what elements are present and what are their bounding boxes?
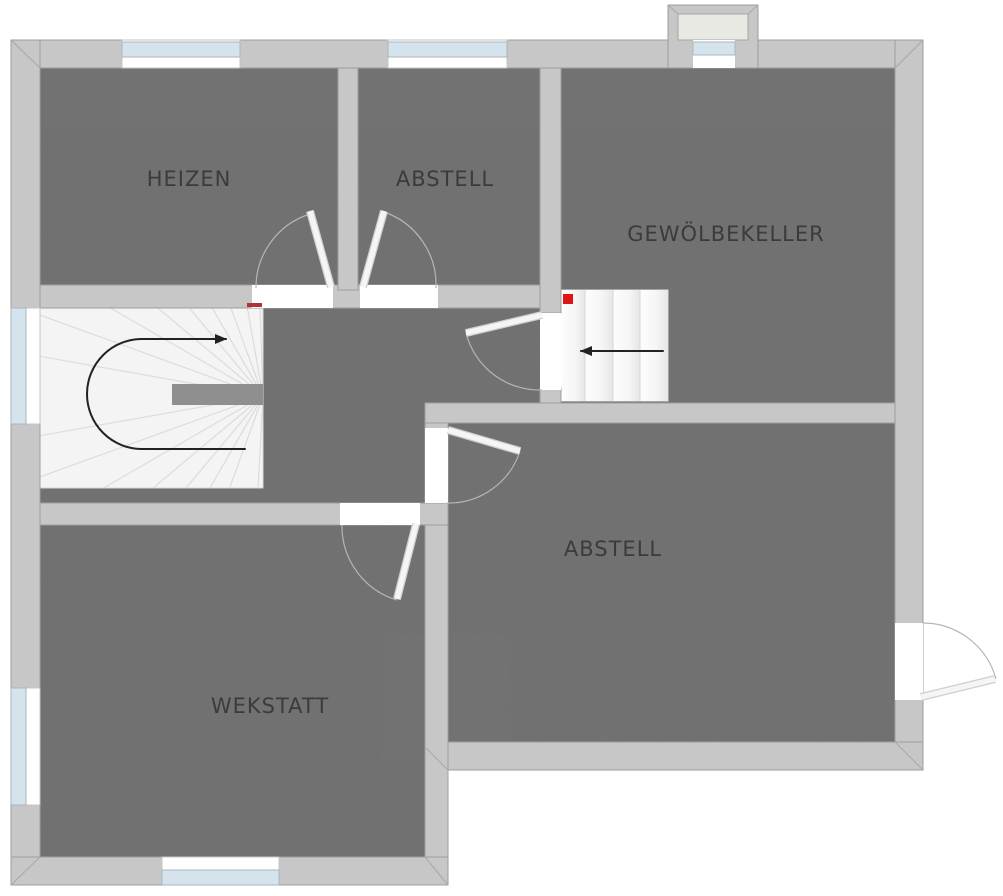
floor-plan: HEIZEN ABSTELL GEWÖLBEKELLER ABSTELL WEK… <box>0 0 1003 896</box>
wall-gewoelbe-west <box>540 68 561 313</box>
red-marker-winder-stair <box>247 303 262 307</box>
chimney-wall-opening <box>693 40 735 68</box>
straight-stair <box>561 290 668 401</box>
door-leaf <box>921 679 995 697</box>
wall-abstell-bottom <box>425 742 923 770</box>
wall-heizen-abstell-divider <box>338 68 358 290</box>
door-opening <box>252 285 333 308</box>
door-opening <box>540 313 561 390</box>
room-label-heizen: HEIZEN <box>147 167 232 191</box>
chimney <box>668 5 758 68</box>
straight-stair-treads <box>561 290 668 401</box>
winder-stair-void <box>172 384 263 405</box>
floor-plan-svg: HEIZEN ABSTELL GEWÖLBEKELLER ABSTELL WEK… <box>0 0 1003 896</box>
wall-gewoelbe-west-stub <box>540 388 561 403</box>
wall-gewoelbe-south <box>425 403 895 423</box>
door-opening <box>360 285 438 308</box>
window-top-left <box>122 40 240 68</box>
red-marker-straight-stair <box>563 294 573 304</box>
room-label-gewoelbekeller: GEWÖLBEKELLER <box>627 221 825 246</box>
door-swing-arc <box>923 623 996 679</box>
window-left-upper <box>11 308 40 424</box>
door-opening <box>425 428 448 503</box>
door-opening <box>340 503 420 525</box>
door-exterior-right <box>895 623 996 700</box>
window-left-lower <box>11 688 40 805</box>
room-label-wekstatt: WEKSTATT <box>211 694 329 718</box>
chimney-flue <box>678 14 748 40</box>
window-bottom <box>162 857 279 885</box>
room-label-abstell-right: ABSTELL <box>564 537 662 561</box>
door-opening <box>895 623 923 700</box>
window-top-middle <box>388 40 507 68</box>
room-label-abstell-top: ABSTELL <box>396 167 494 191</box>
